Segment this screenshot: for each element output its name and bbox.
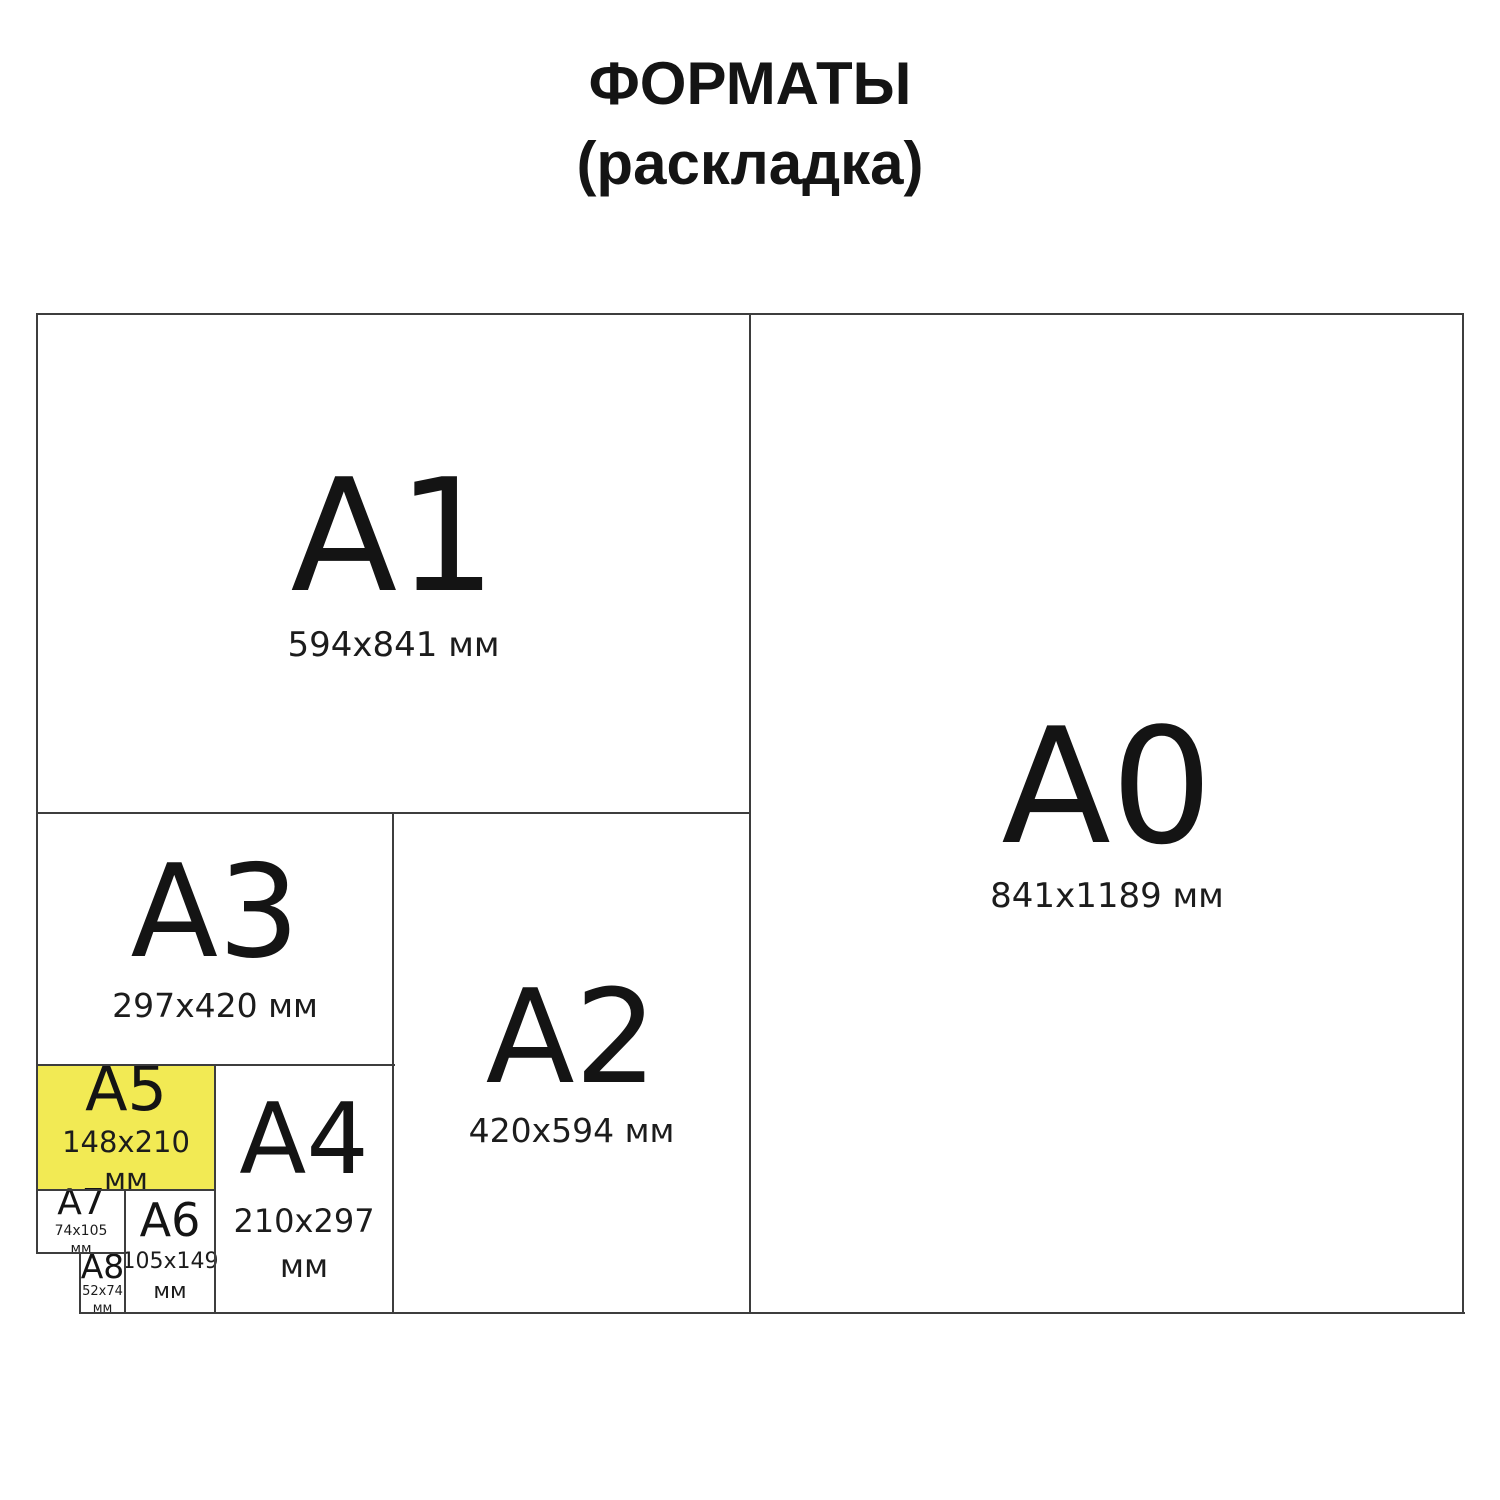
page-title: ФОРМАТЫ (раскладка) <box>0 44 1500 204</box>
format-label-a4: A4 <box>239 1091 368 1189</box>
format-size-a7: 74x105 <box>55 1222 108 1240</box>
border-line-right <box>1462 313 1464 1314</box>
format-cell-a6: A6 105x149 мм <box>125 1190 215 1314</box>
border-line-a4-divider <box>214 1064 216 1314</box>
format-cell-a7: A7 74x105 мм <box>37 1190 125 1253</box>
page-title-line2: (раскладка) <box>0 124 1500 204</box>
format-cell-a8: A8 52x74 мм <box>80 1253 125 1314</box>
page-title-line1: ФОРМАТЫ <box>0 44 1500 124</box>
paper-formats-diagram: ФОРМАТЫ (раскладка) A1 594x841 мм A0 841… <box>0 0 1500 1500</box>
format-label-a2: A2 <box>486 972 658 1102</box>
format-cell-a4: A4 210x297 мм <box>215 1065 393 1314</box>
format-size-a5: 148x210 <box>62 1124 190 1160</box>
format-label-a5: A5 <box>85 1058 167 1120</box>
format-unit-a8: мм <box>93 1301 113 1317</box>
format-label-a3: A3 <box>131 849 300 977</box>
format-size-a2: 420x594 мм <box>469 1108 675 1154</box>
border-line-a0-divider <box>749 313 751 1314</box>
format-label-a6: A6 <box>140 1197 201 1243</box>
format-label-a8: A8 <box>81 1250 125 1283</box>
border-line-a5-bottom <box>36 1189 216 1191</box>
format-size-a4: 210x297 <box>233 1199 374 1244</box>
border-line-left <box>36 313 38 1254</box>
format-size-a1: 594x841 мм <box>287 622 499 670</box>
format-unit-a6: мм <box>153 1277 186 1307</box>
format-cell-a1: A1 594x841 мм <box>37 314 750 813</box>
border-line-a2-divider <box>392 812 394 1314</box>
format-label-a0: A0 <box>1001 707 1212 867</box>
format-size-a8: 52x74 <box>82 1284 123 1300</box>
format-unit-a4: мм <box>280 1244 328 1289</box>
border-line-a7-bottom <box>36 1252 126 1254</box>
format-cell-a0: A0 841x1189 мм <box>750 314 1464 1314</box>
format-size-a6: 105x149 <box>122 1247 219 1277</box>
format-size-a0: 841x1189 мм <box>990 873 1224 921</box>
format-cell-a5: A5 148x210 мм <box>37 1065 215 1190</box>
border-line-a8-left <box>79 1252 81 1314</box>
format-cell-a2: A2 420x594 мм <box>393 813 750 1314</box>
border-line-bottom <box>79 1312 1465 1314</box>
border-line-a6-divider <box>124 1189 126 1314</box>
format-cell-a3: A3 297x420 мм <box>37 813 393 1065</box>
format-size-a3: 297x420 мм <box>112 983 318 1029</box>
format-label-a1: A1 <box>291 458 497 614</box>
